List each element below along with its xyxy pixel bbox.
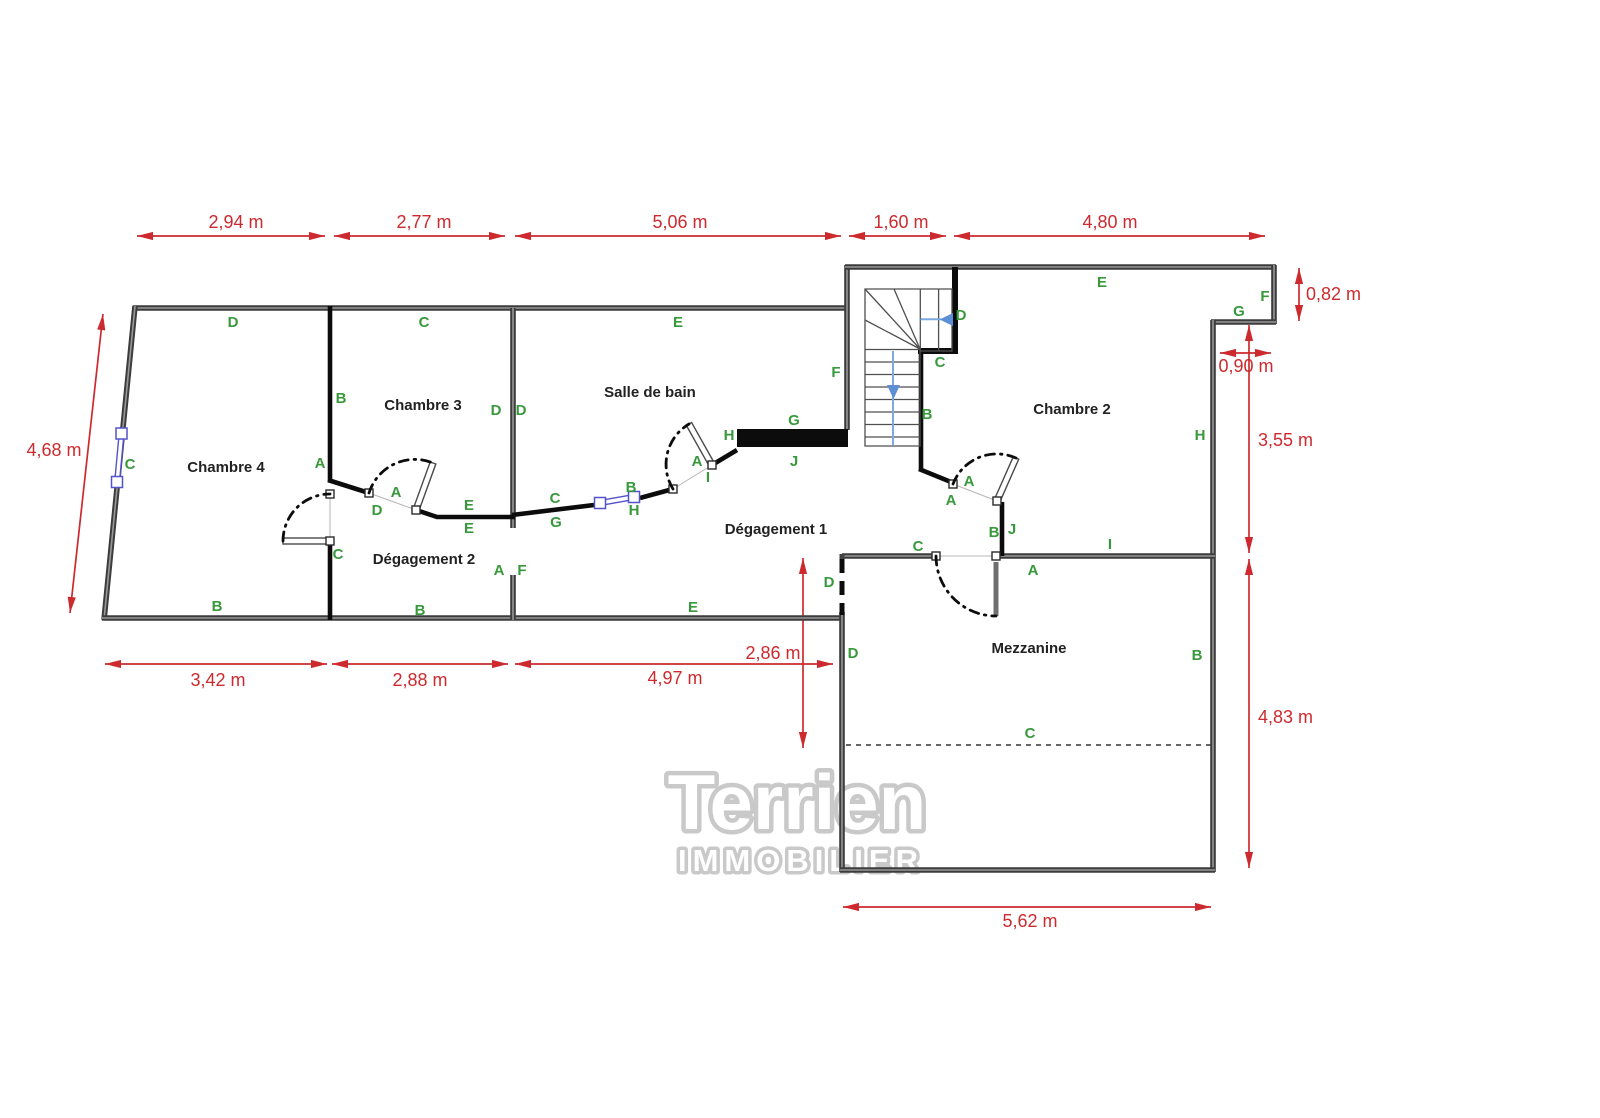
svg-text:Chambre 2: Chambre 2 — [1033, 401, 1111, 418]
svg-text:E: E — [464, 497, 474, 514]
svg-text:A: A — [946, 492, 957, 509]
svg-text:4,83 m: 4,83 m — [1258, 707, 1313, 727]
svg-text:G: G — [788, 412, 800, 429]
svg-text:Chambre 3: Chambre 3 — [384, 397, 462, 414]
svg-text:0,90 m: 0,90 m — [1218, 356, 1273, 376]
svg-text:B: B — [415, 602, 426, 619]
svg-text:F: F — [831, 364, 840, 381]
svg-text:I: I — [1108, 536, 1112, 553]
svg-text:E: E — [673, 314, 683, 331]
svg-text:Chambre 4: Chambre 4 — [187, 459, 265, 476]
svg-text:Mezzanine: Mezzanine — [991, 640, 1066, 657]
svg-text:3,55 m: 3,55 m — [1258, 430, 1313, 450]
svg-text:F: F — [1260, 288, 1269, 305]
svg-text:A: A — [692, 453, 703, 470]
svg-text:C: C — [419, 314, 430, 331]
svg-text:A: A — [964, 473, 975, 490]
svg-text:G: G — [550, 514, 562, 531]
svg-text:5,06 m: 5,06 m — [652, 212, 707, 232]
svg-text:A: A — [315, 455, 326, 472]
svg-text:2,94 m: 2,94 m — [208, 212, 263, 232]
svg-text:B: B — [626, 479, 637, 496]
svg-text:H: H — [629, 502, 640, 519]
svg-text:C: C — [1025, 725, 1036, 742]
svg-text:C: C — [935, 354, 946, 371]
svg-text:B: B — [922, 406, 933, 423]
svg-text:E: E — [1097, 274, 1107, 291]
svg-text:C: C — [333, 546, 344, 563]
svg-text:4,68 m: 4,68 m — [26, 440, 81, 460]
svg-text:Dégagement 1: Dégagement 1 — [725, 521, 828, 538]
svg-text:G: G — [1233, 303, 1245, 320]
svg-text:D: D — [848, 645, 859, 662]
svg-text:1,60 m: 1,60 m — [873, 212, 928, 232]
svg-text:F: F — [517, 562, 526, 579]
svg-text:C: C — [125, 456, 136, 473]
svg-text:D: D — [824, 574, 835, 591]
svg-text:D: D — [516, 402, 527, 419]
svg-text:I: I — [706, 469, 710, 486]
svg-text:A: A — [391, 484, 402, 501]
svg-text:B: B — [989, 524, 1000, 541]
svg-text:B: B — [212, 598, 223, 615]
svg-text:4,97 m: 4,97 m — [647, 668, 702, 688]
svg-text:H: H — [724, 427, 735, 444]
svg-text:4,80 m: 4,80 m — [1082, 212, 1137, 232]
svg-text:J: J — [790, 453, 798, 470]
svg-text:E: E — [464, 520, 474, 537]
svg-text:E: E — [688, 599, 698, 616]
svg-text:Dégagement 2: Dégagement 2 — [373, 551, 476, 568]
svg-text:Salle de bain: Salle de bain — [604, 384, 696, 401]
svg-text:2,88 m: 2,88 m — [392, 670, 447, 690]
svg-text:0,82 m: 0,82 m — [1306, 284, 1361, 304]
svg-text:H: H — [1195, 427, 1206, 444]
svg-text:C: C — [913, 538, 924, 555]
svg-text:B: B — [1192, 647, 1203, 664]
svg-text:D: D — [956, 307, 967, 324]
svg-text:A: A — [494, 562, 505, 579]
svg-text:2,77 m: 2,77 m — [396, 212, 451, 232]
svg-text:J: J — [1008, 521, 1016, 538]
svg-text:Terrien: Terrien — [668, 758, 927, 846]
svg-text:D: D — [372, 502, 383, 519]
svg-text:2,86 m: 2,86 m — [745, 643, 800, 663]
svg-text:D: D — [228, 314, 239, 331]
svg-text:C: C — [550, 490, 561, 507]
svg-text:5,62 m: 5,62 m — [1002, 911, 1057, 931]
svg-text:3,42 m: 3,42 m — [190, 670, 245, 690]
svg-text:B: B — [336, 390, 347, 407]
svg-text:A: A — [1028, 562, 1039, 579]
svg-text:D: D — [491, 402, 502, 419]
